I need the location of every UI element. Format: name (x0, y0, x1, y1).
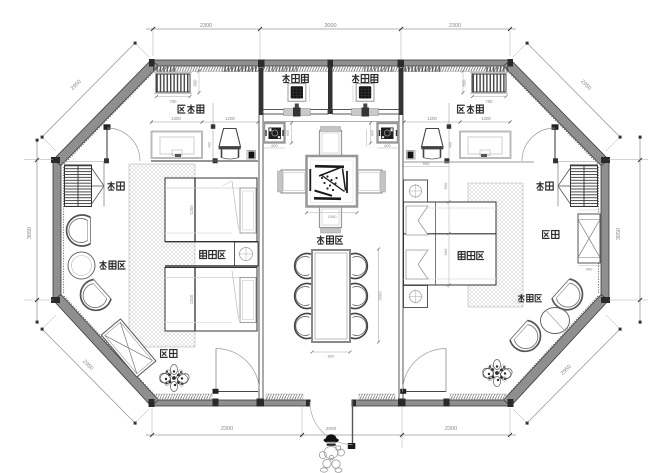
svg-text:2300: 2300 (449, 23, 461, 29)
svg-text:900: 900 (443, 248, 448, 255)
svg-text:1200: 1200 (189, 205, 194, 215)
svg-text:900: 900 (423, 161, 430, 166)
svg-text:700: 700 (486, 99, 494, 104)
svg-text:700: 700 (170, 99, 178, 104)
svg-text:3050: 3050 (616, 228, 622, 240)
svg-text:1200: 1200 (225, 116, 235, 121)
svg-text:400: 400 (586, 267, 593, 272)
svg-text:600: 600 (271, 144, 277, 148)
svg-text:600: 600 (384, 144, 390, 148)
svg-text:2000: 2000 (378, 291, 383, 301)
svg-text:900: 900 (443, 182, 448, 189)
svg-text:1000: 1000 (328, 214, 338, 219)
svg-text:1300: 1300 (481, 116, 491, 121)
svg-text:600: 600 (371, 130, 375, 136)
svg-text:800: 800 (193, 79, 198, 87)
svg-text:400: 400 (449, 142, 453, 148)
svg-text:1200: 1200 (189, 294, 194, 304)
svg-text:2300: 2300 (221, 426, 233, 432)
svg-text:600: 600 (286, 130, 290, 136)
svg-text:800: 800 (462, 79, 467, 87)
svg-text:2300: 2300 (200, 23, 212, 29)
svg-text:3000: 3000 (324, 23, 336, 29)
svg-text:1200: 1200 (427, 116, 437, 121)
svg-text:800: 800 (328, 354, 335, 359)
svg-text:1300: 1300 (171, 116, 181, 121)
svg-text:400: 400 (208, 142, 212, 148)
svg-text:3050: 3050 (27, 227, 33, 239)
svg-text:2300: 2300 (445, 426, 457, 432)
svg-text:2000: 2000 (326, 426, 337, 432)
